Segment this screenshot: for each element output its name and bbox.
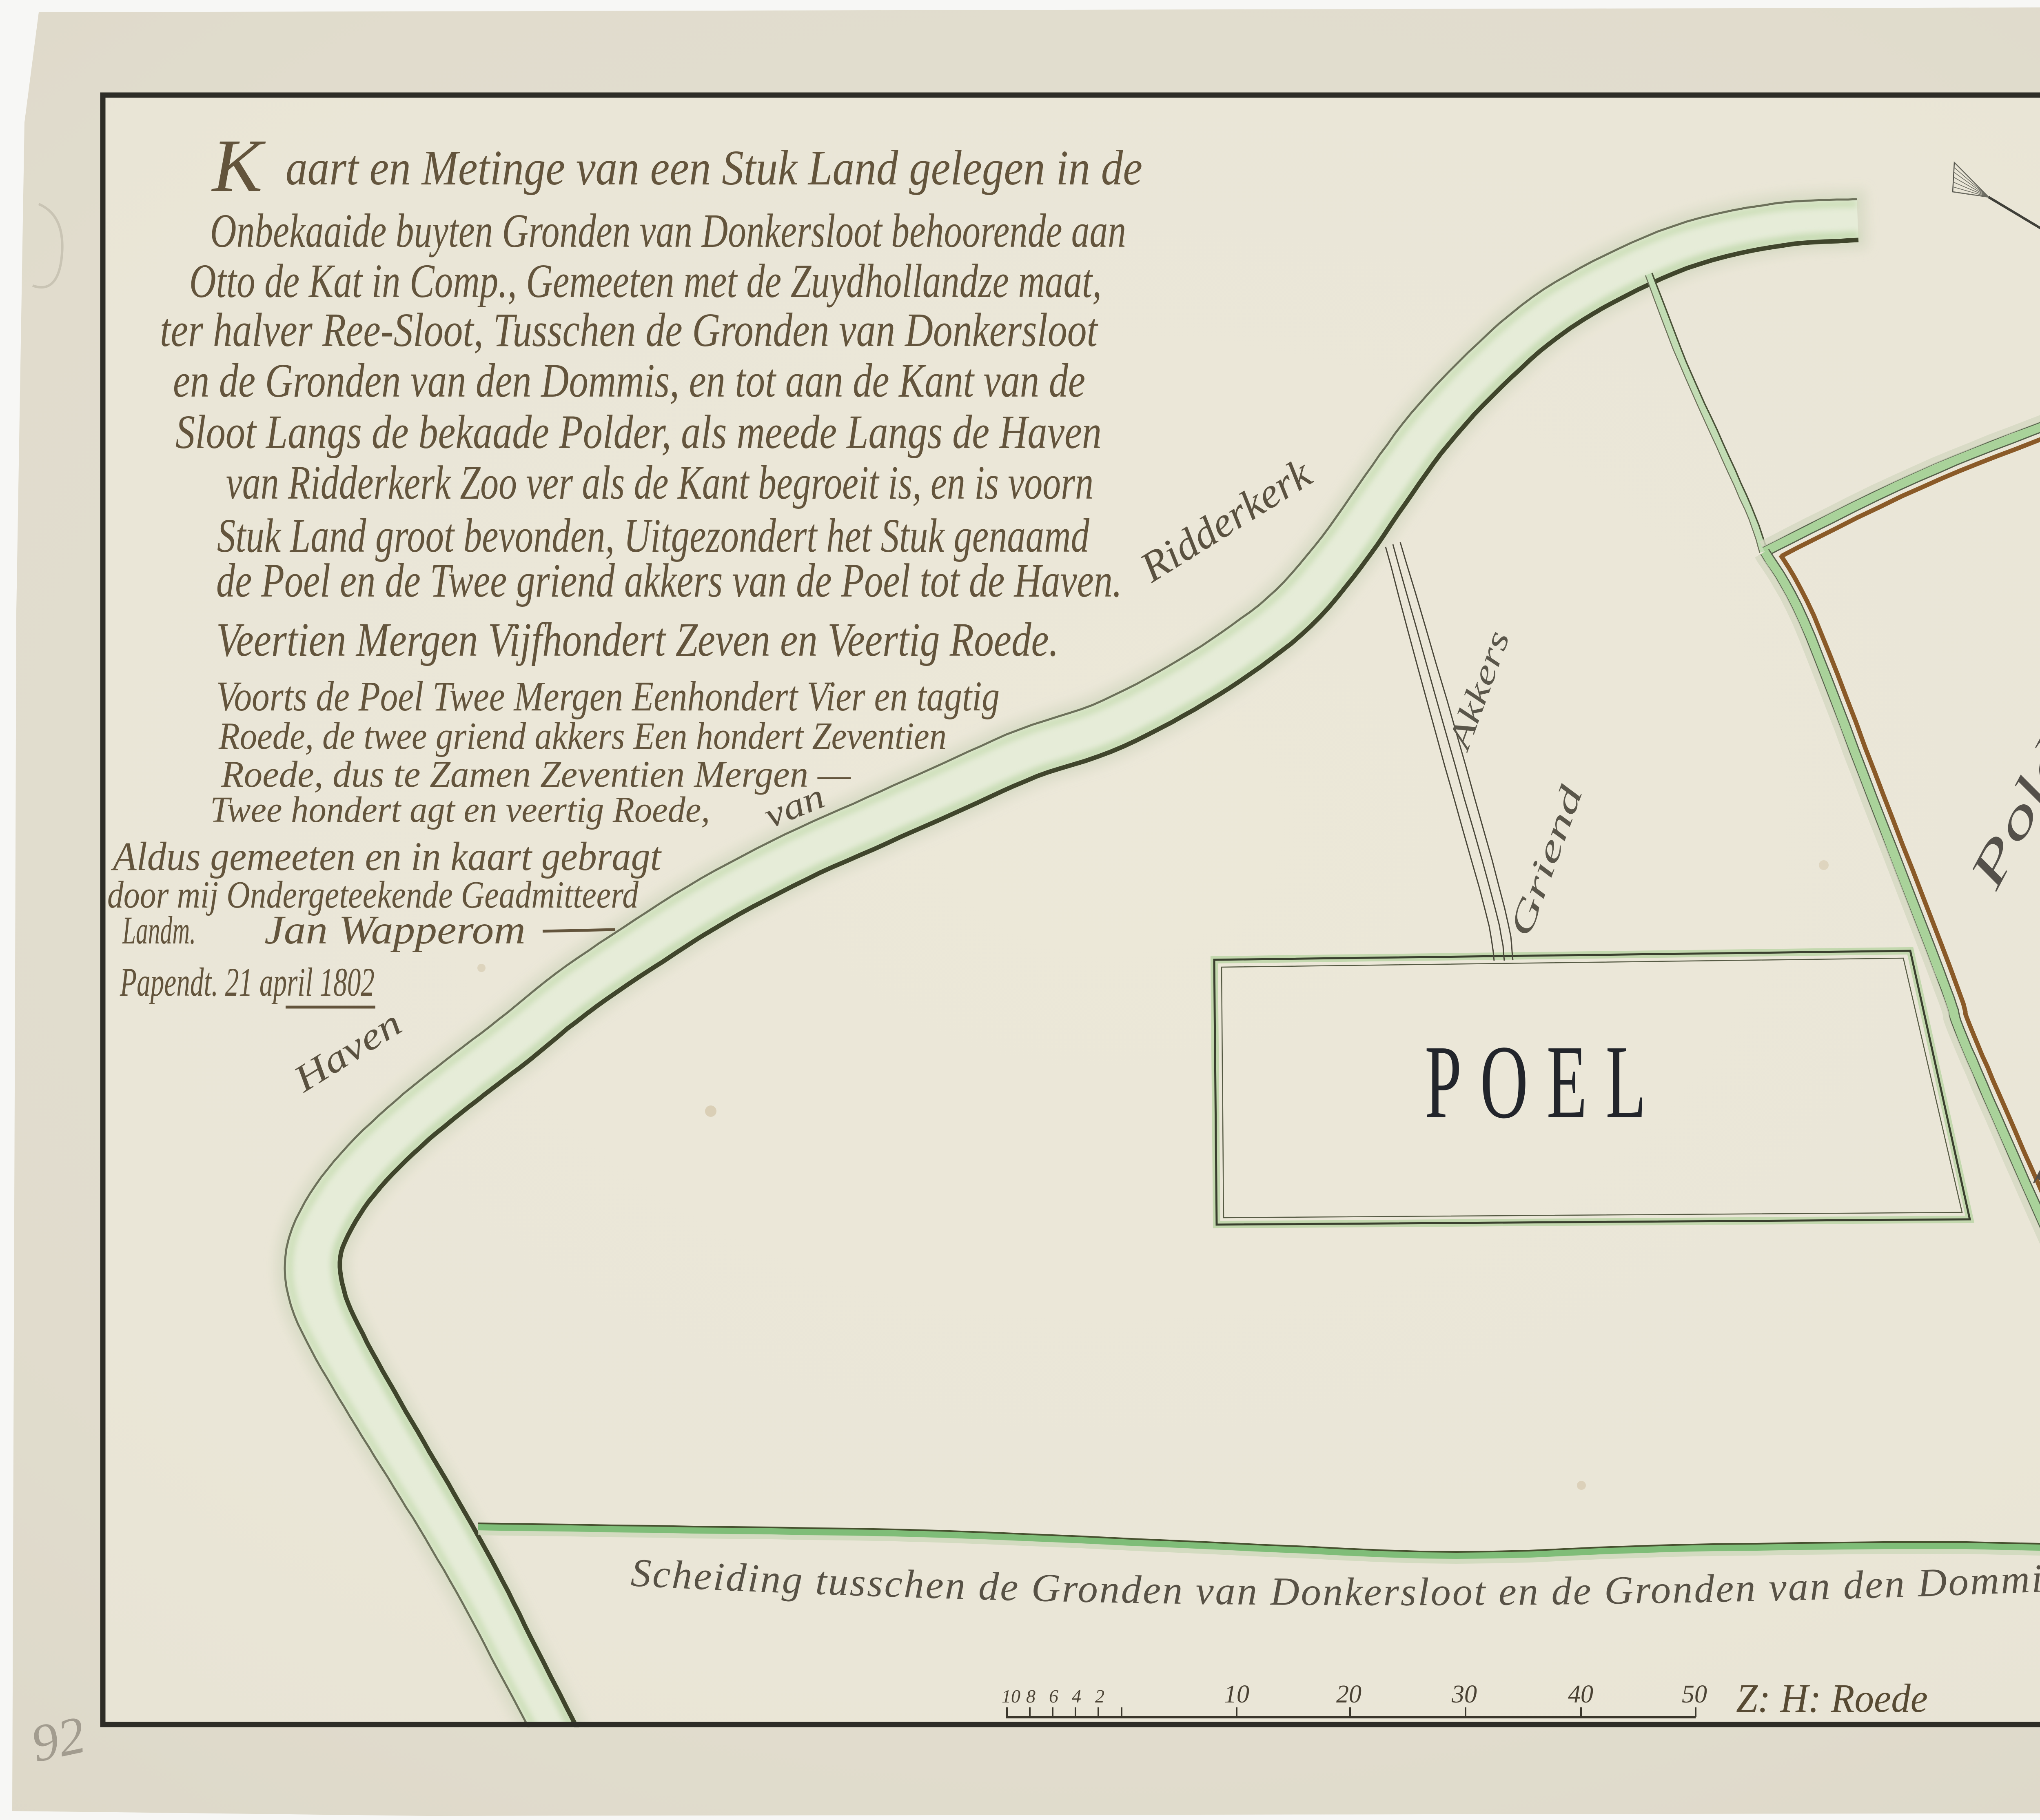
svg-text:Sloot Langs de bekaade Polder,: Sloot Langs de bekaade Polder, als meede…: [175, 405, 1102, 459]
svg-text:K: K: [211, 124, 266, 208]
svg-text:6: 6: [1049, 1686, 1058, 1707]
svg-text:Voorts de Poel Twee Mergen Een: Voorts de Poel Twee Mergen Eenhondert Vi…: [216, 673, 1000, 720]
svg-text:Landm.: Landm.: [122, 908, 196, 952]
svg-text:en de Gronden van den Dommis,: en de Gronden van den Dommis, en tot aan…: [173, 354, 1085, 407]
svg-text:Roede, de twee griend akkers E: Roede, de twee griend akkers Een hondert…: [218, 715, 947, 757]
svg-text:de Poel en de Twee griend akke: de Poel en de Twee griend akkers van de …: [216, 554, 1122, 607]
svg-text:POEL: POEL: [1425, 1024, 1665, 1141]
svg-text:aart en Metinge van een Stuk L: aart en Metinge van een Stuk Land gelege…: [286, 140, 1142, 195]
svg-text:2: 2: [1095, 1686, 1104, 1707]
svg-text:Aldus gemeeten en in kaart geb: Aldus gemeeten en in kaart gebragt: [111, 834, 662, 879]
svg-text:Z: H: Roede: Z: H: Roede: [1736, 1676, 1928, 1721]
svg-text:Otto de Kat in Comp., Gemeeten: Otto de Kat in Comp., Gemeeten met de Zu…: [189, 254, 1102, 308]
svg-text:Veertien Mergen Vijfhondert Ze: Veertien Mergen Vijfhondert Zeven en Vee…: [216, 613, 1059, 666]
svg-text:Onbekaaide buyten Gronden van: Onbekaaide buyten Gronden van Donkersloo…: [210, 204, 1126, 257]
svg-text:Roede, dus te Zamen Zeventien: Roede, dus te Zamen Zeventien Mergen —: [221, 753, 851, 795]
svg-text:8: 8: [1026, 1686, 1036, 1707]
svg-text:ter halver Ree-Sloot, Tusschen: ter halver Ree-Sloot, Tusschen de Gronde…: [160, 303, 1099, 357]
svg-text:Papendt. 21 april 1802: Papendt. 21 april 1802: [120, 959, 375, 1005]
svg-text:Twee hondert agt en veertig Ro: Twee hondert agt en veertig Roede,: [210, 790, 710, 830]
svg-text:4: 4: [1072, 1686, 1081, 1707]
svg-text:40: 40: [1568, 1680, 1593, 1708]
svg-text:20: 20: [1336, 1680, 1361, 1708]
svg-text:van Ridderkerk Zoo ver als de: van Ridderkerk Zoo ver als de Kant begro…: [226, 456, 1093, 509]
svg-text:50: 50: [1682, 1680, 1707, 1708]
svg-text:10: 10: [1002, 1686, 1020, 1707]
svg-text:10: 10: [1224, 1680, 1249, 1708]
svg-text:30: 30: [1451, 1680, 1477, 1708]
svg-text:Jan Wapperom: Jan Wapperom: [264, 907, 526, 952]
